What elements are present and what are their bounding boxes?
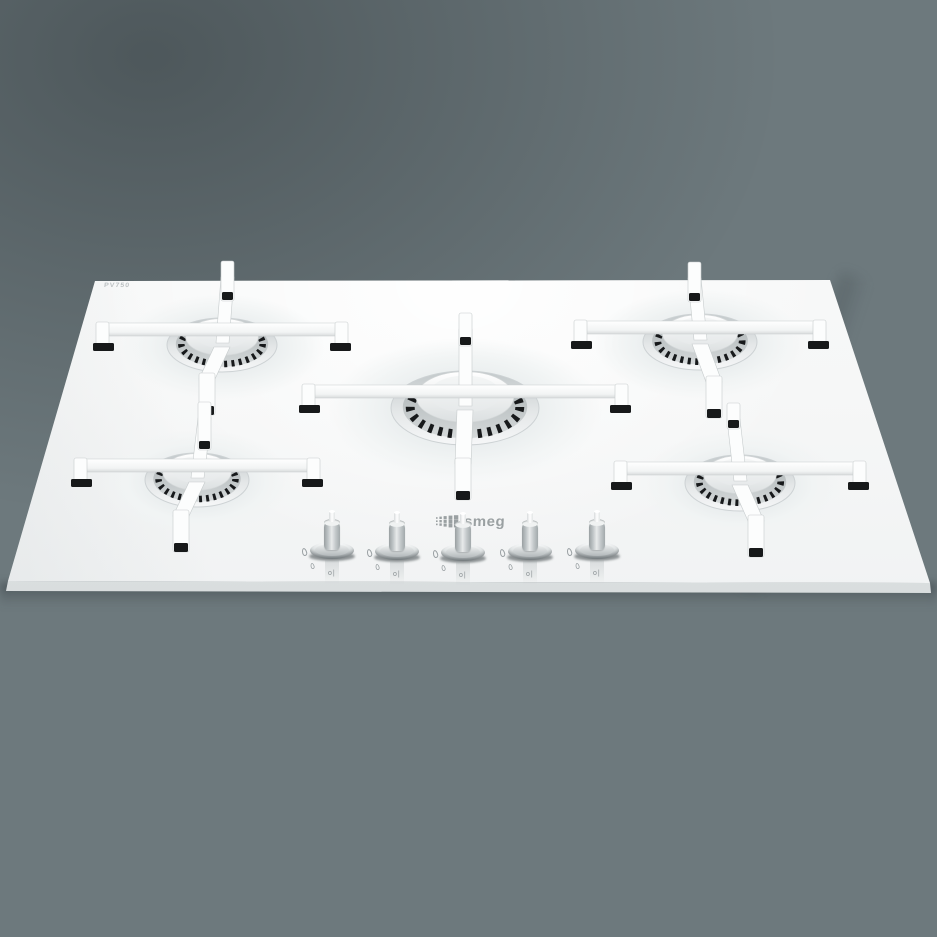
smeg-logo-text: smeg [464,514,506,528]
etched-model-marking: PV750 [104,282,131,288]
smeg-logo: smeg [436,510,505,532]
halftone-dots-icon [436,514,461,528]
countertop-front-face [0,654,937,937]
wall-background [0,0,937,258]
product-photo-gas-hob: PV750 [0,0,937,937]
countertop-bullnose-edge [0,600,937,654]
